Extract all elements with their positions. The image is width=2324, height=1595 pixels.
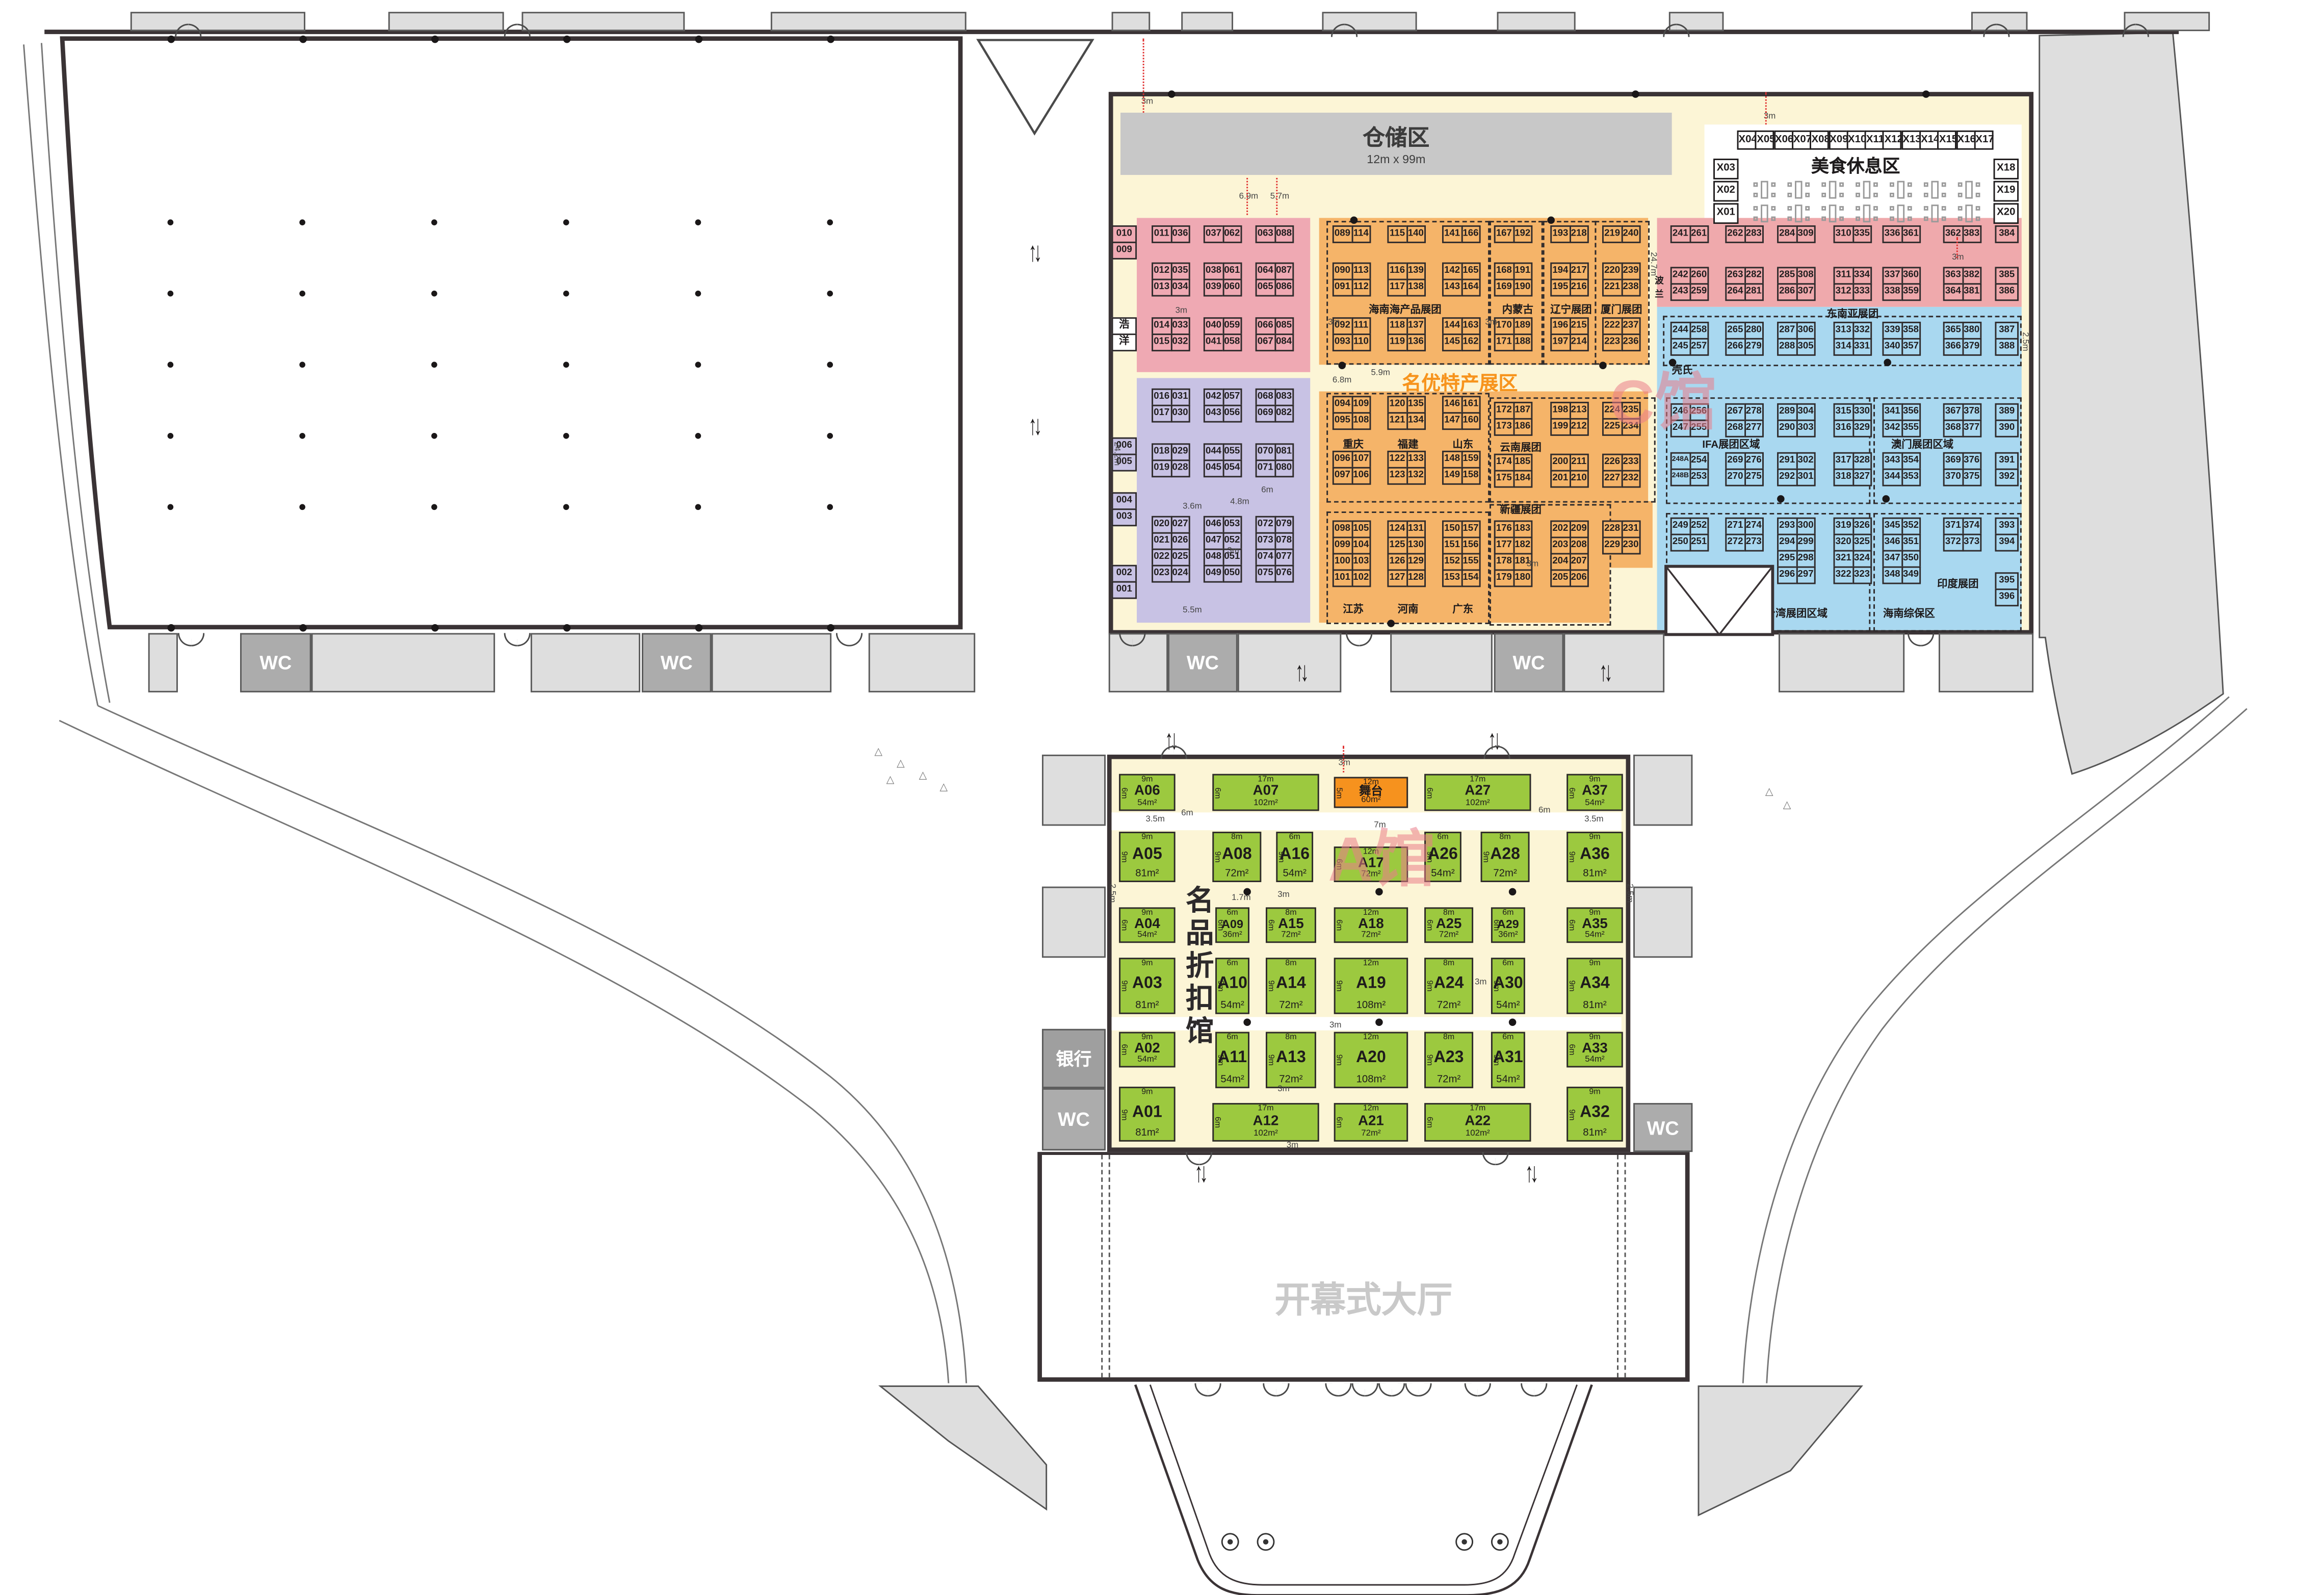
floor-plan: 仓储区 12m x 99m 美食休息区 品牌年货区 酒类饮料区 名优特产展区 老… bbox=[0, 0, 2324, 1595]
c-entrance bbox=[0, 0, 2324, 1595]
